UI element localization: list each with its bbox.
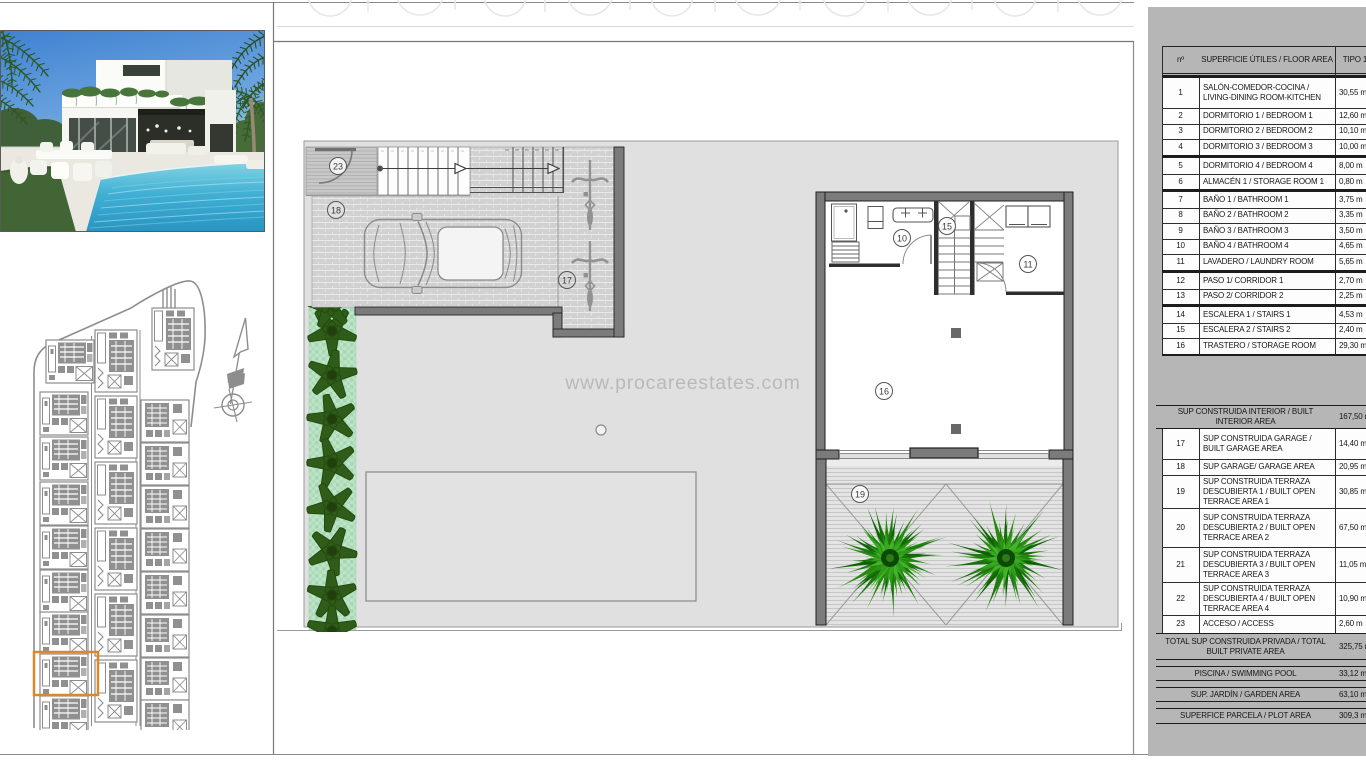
svg-text:23: 23 — [333, 162, 343, 172]
svg-text:17: 17 — [562, 276, 572, 286]
svg-text:16: 16 — [879, 387, 889, 397]
svg-text:www.procareestates.com: www.procareestates.com — [564, 372, 800, 394]
svg-text:19: 19 — [855, 490, 865, 500]
svg-text:10: 10 — [897, 234, 907, 244]
svg-text:11: 11 — [1023, 260, 1032, 270]
svg-text:18: 18 — [331, 206, 341, 216]
svg-text:15: 15 — [942, 222, 952, 232]
